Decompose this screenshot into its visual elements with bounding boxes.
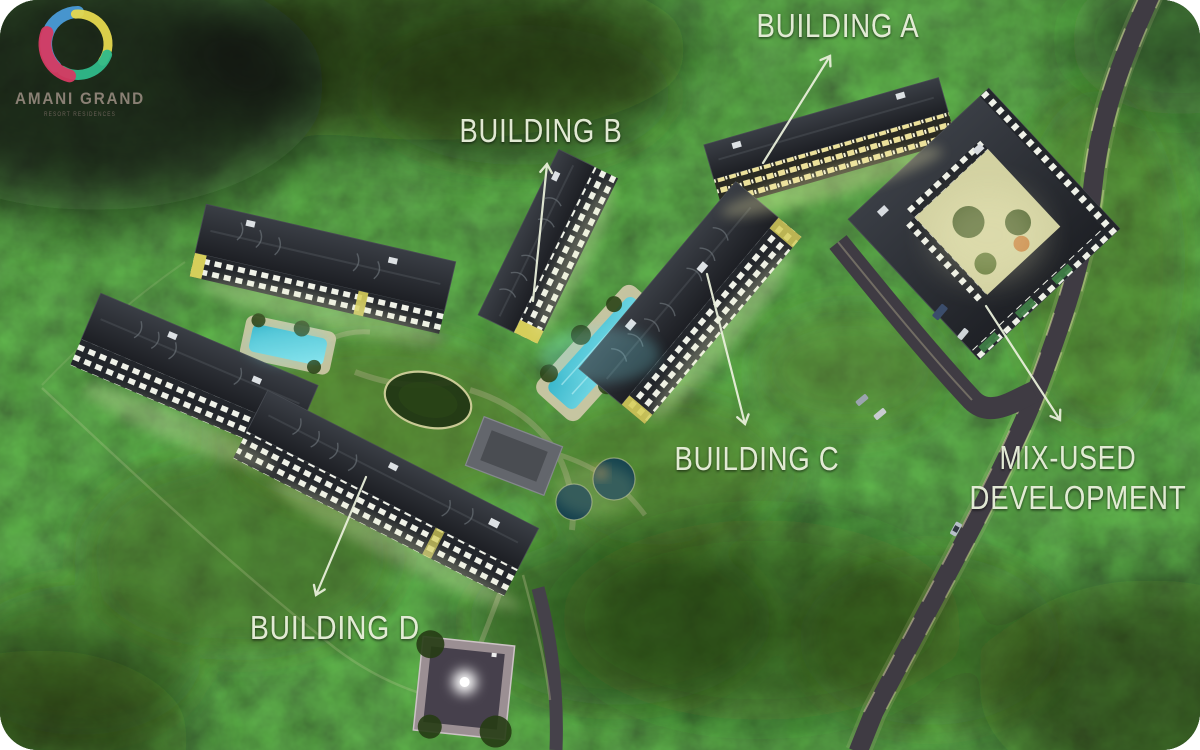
logo-brand-text: AMANI GRAND: [15, 89, 145, 108]
mixed-use-label-line2: DEVELOPMENT: [970, 479, 1187, 516]
building-d-label: BUILDING D: [250, 609, 420, 646]
amani-grand-site-aerial: BUILDING A BUILDING B BUILDING C BUILDIN…: [0, 0, 1200, 750]
building-b-label: BUILDING B: [460, 112, 623, 149]
amenity-court: [406, 629, 521, 749]
building-c-label: BUILDING C: [675, 440, 840, 477]
site-plan-canvas: BUILDING A BUILDING B BUILDING C BUILDIN…: [0, 0, 1200, 750]
building-a-label: BUILDING A: [757, 7, 920, 44]
mixed-use-label-line1: MIX-USED: [1000, 439, 1137, 476]
logo-tagline-text: RESORT RESIDENCES: [44, 111, 116, 118]
